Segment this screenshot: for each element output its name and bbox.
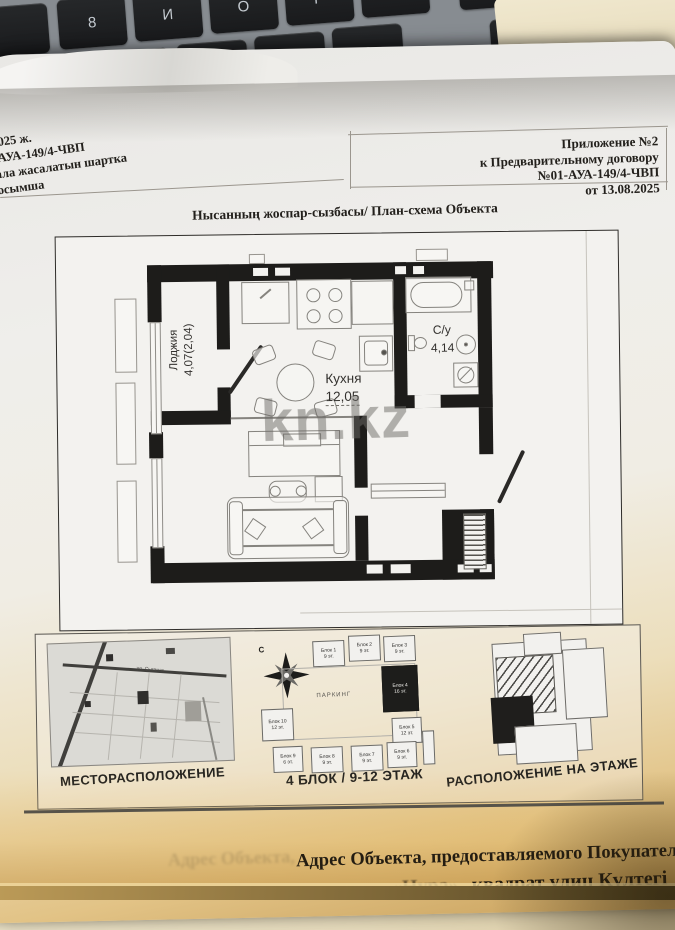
bathtub-basin [410, 281, 462, 308]
map-street [75, 732, 220, 743]
wall-right-mid [479, 407, 494, 454]
window-slit [275, 268, 290, 276]
wall-bottom [153, 559, 495, 583]
compass-north-label: С [258, 645, 265, 654]
footer-ghost-text: Адрес Объекта, [168, 846, 295, 871]
sofa-armrest [229, 501, 244, 555]
wall-loggia-right-upper [216, 264, 230, 349]
floor-position [461, 628, 630, 767]
page-bottom-edge [0, 886, 675, 900]
radiator-hatch [463, 513, 487, 569]
block-4-highlighted: Блок 416 эт. [381, 665, 419, 712]
block-1: Блок 19 эт. [312, 640, 345, 667]
bathroom-area: 4,14 [431, 341, 455, 355]
window-slit [395, 266, 406, 274]
chair-armrest [270, 486, 281, 497]
floor-plan: Лоджия 4,07(2,04) Кухня 12,05 С/у 4,14 k… [55, 230, 624, 632]
stove [296, 279, 352, 330]
unit-outline [562, 647, 608, 719]
watermark: kn.kz [260, 384, 412, 455]
kitchen-name: Кухня [325, 371, 361, 386]
site-plan: С ПАРКИНГ Блок 19 эт. Блок 29 эт. Блок 3… [252, 630, 444, 776]
window-slit [391, 564, 411, 573]
map-park [185, 701, 202, 722]
map-building [166, 648, 175, 654]
chair [311, 339, 337, 361]
document-content: 2025 ж. -АУА-149/4-ЧВП ала жасалатын шар… [0, 0, 675, 900]
block-6: Блок 69 эт. [386, 741, 417, 768]
wall-left-upper [147, 265, 162, 322]
block-3: Блок 39 эт. [383, 635, 416, 662]
burner [328, 288, 342, 302]
kitchen-cabinet [241, 282, 290, 325]
wall-loggia-bottom [151, 410, 231, 425]
kitchen-counter [351, 280, 394, 325]
page-artifact-line [586, 231, 592, 624]
page-artifact-line [300, 609, 622, 614]
window-slit [413, 266, 424, 274]
washer-drum [457, 366, 474, 383]
burner [329, 309, 343, 323]
street-name-label: ул. Сыганак [136, 666, 164, 674]
footer-address-line: Адрес Объекта, предоставляемого Покупате… [296, 841, 675, 873]
bottom-panels: ул. Сыганак МЕСТОРАСПОЛОЖЕНИЕ С ПАРКИНГ … [35, 624, 644, 809]
sink-faucet [381, 349, 387, 355]
chair-armrest [296, 485, 307, 496]
wall-bath-right [477, 261, 493, 407]
map-street [172, 674, 182, 758]
map-building [151, 723, 157, 732]
window-slit [253, 268, 268, 276]
block-narrow [422, 730, 435, 764]
window-sill [114, 298, 137, 372]
block-9: Блок 96 эт. [273, 746, 304, 773]
bath-sink-drain [464, 342, 468, 346]
entry-door-leaf [497, 450, 525, 504]
wall-left-mid [149, 432, 163, 458]
page-title: Нысанның жоспар-сызбасы/ План-схема Объе… [110, 198, 580, 225]
photo-scene: 8 И О Р Х Enter У Ш Ж Э Shift 2025 ж. -А… [0, 0, 675, 900]
vent-mark [416, 249, 448, 261]
header-right-block: Приложение №2 к Предварительному договор… [479, 133, 660, 201]
map-building [137, 691, 148, 704]
location-caption: МЕСТОРАСПОЛОЖЕНИЕ [60, 764, 226, 789]
map-building [106, 654, 113, 661]
map-street [108, 672, 118, 760]
bathroom-name: С/у [433, 323, 451, 337]
map-building [85, 701, 91, 707]
loggia-name: Лоджия [166, 290, 182, 410]
map-street [202, 697, 217, 760]
window-glazing [151, 458, 163, 548]
chair [251, 344, 277, 367]
header-divider-left [350, 131, 351, 189]
wall-hall-lower [355, 516, 369, 561]
block-10: Блок 1012 эт. [261, 708, 294, 741]
map-road-diagonal [52, 637, 108, 767]
header-left-block: 2025 ж. -АУА-149/4-ЧВП ала жасалатын шар… [0, 118, 130, 199]
block-2: Блок 29 эт. [348, 634, 381, 661]
window-sill [117, 480, 138, 562]
unit-outline [523, 632, 562, 656]
unit-outline [514, 723, 578, 765]
window-glazing [150, 322, 162, 434]
bath-shelf [464, 280, 474, 290]
burner [307, 309, 321, 323]
bath-door-opening [415, 395, 441, 408]
window-sill [115, 382, 136, 464]
block-5: Блок 512 эт. [391, 717, 422, 744]
burner [306, 288, 320, 302]
toilet-bowl [414, 337, 427, 349]
vent-mark [249, 254, 265, 264]
location-map: ул. Сыганак [47, 637, 235, 768]
window-slit [367, 564, 383, 573]
loggia-label: Лоджия 4,07(2,04) [166, 290, 211, 411]
sofa-armrest [333, 500, 348, 554]
block-8: Блок 89 эт. [311, 746, 344, 773]
loggia-area: 4,07(2,04) [181, 290, 197, 410]
